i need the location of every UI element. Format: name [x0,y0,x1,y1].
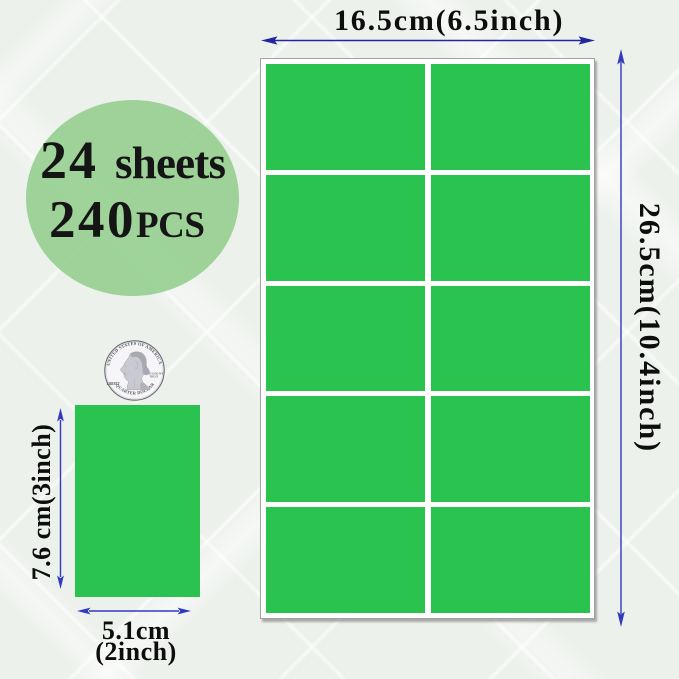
svg-text:LIBERTY: LIBERTY [107,381,121,386]
svg-text:TRUST: TRUST [150,376,159,379]
